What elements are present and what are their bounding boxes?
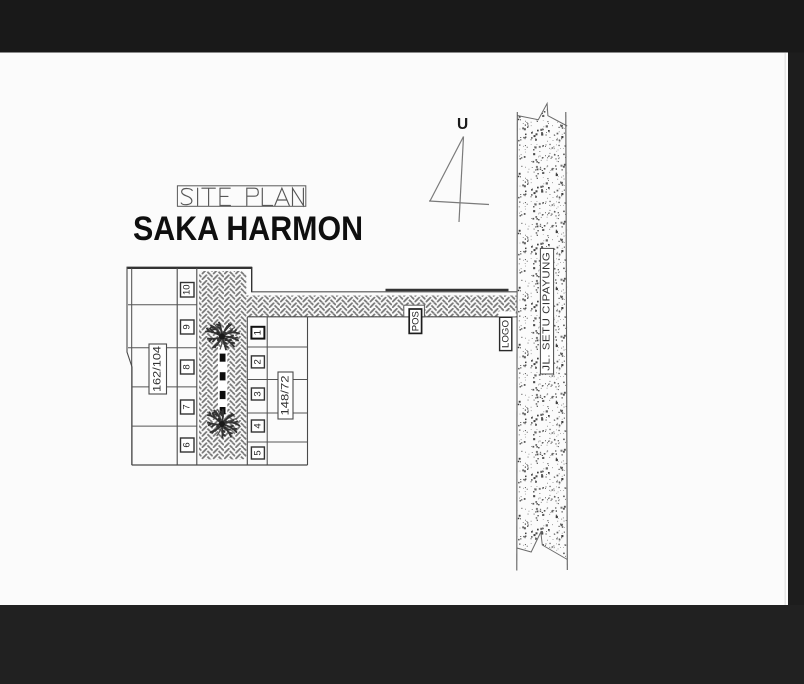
svg-text:8: 8: [182, 364, 193, 369]
svg-text:2: 2: [252, 359, 263, 364]
svg-text:1: 1: [252, 330, 263, 335]
svg-text:5: 5: [252, 450, 263, 455]
svg-text:4: 4: [252, 423, 263, 428]
svg-text:7: 7: [182, 404, 193, 409]
svg-text:10: 10: [182, 284, 193, 295]
svg-text:9: 9: [182, 324, 193, 329]
svg-text:U: U: [457, 116, 468, 133]
svg-text:148/72: 148/72: [280, 376, 292, 416]
svg-text:LOGO: LOGO: [501, 320, 511, 348]
svg-text:POS: POS: [410, 311, 420, 331]
svg-text:3: 3: [252, 391, 263, 396]
svg-text:JL. SETU CIPAYUNG: JL. SETU CIPAYUNG: [542, 252, 553, 371]
svg-text:6: 6: [182, 442, 193, 447]
svg-text:SAKA HARMON: SAKA HARMON: [133, 210, 363, 248]
svg-text:162/104: 162/104: [152, 346, 164, 392]
